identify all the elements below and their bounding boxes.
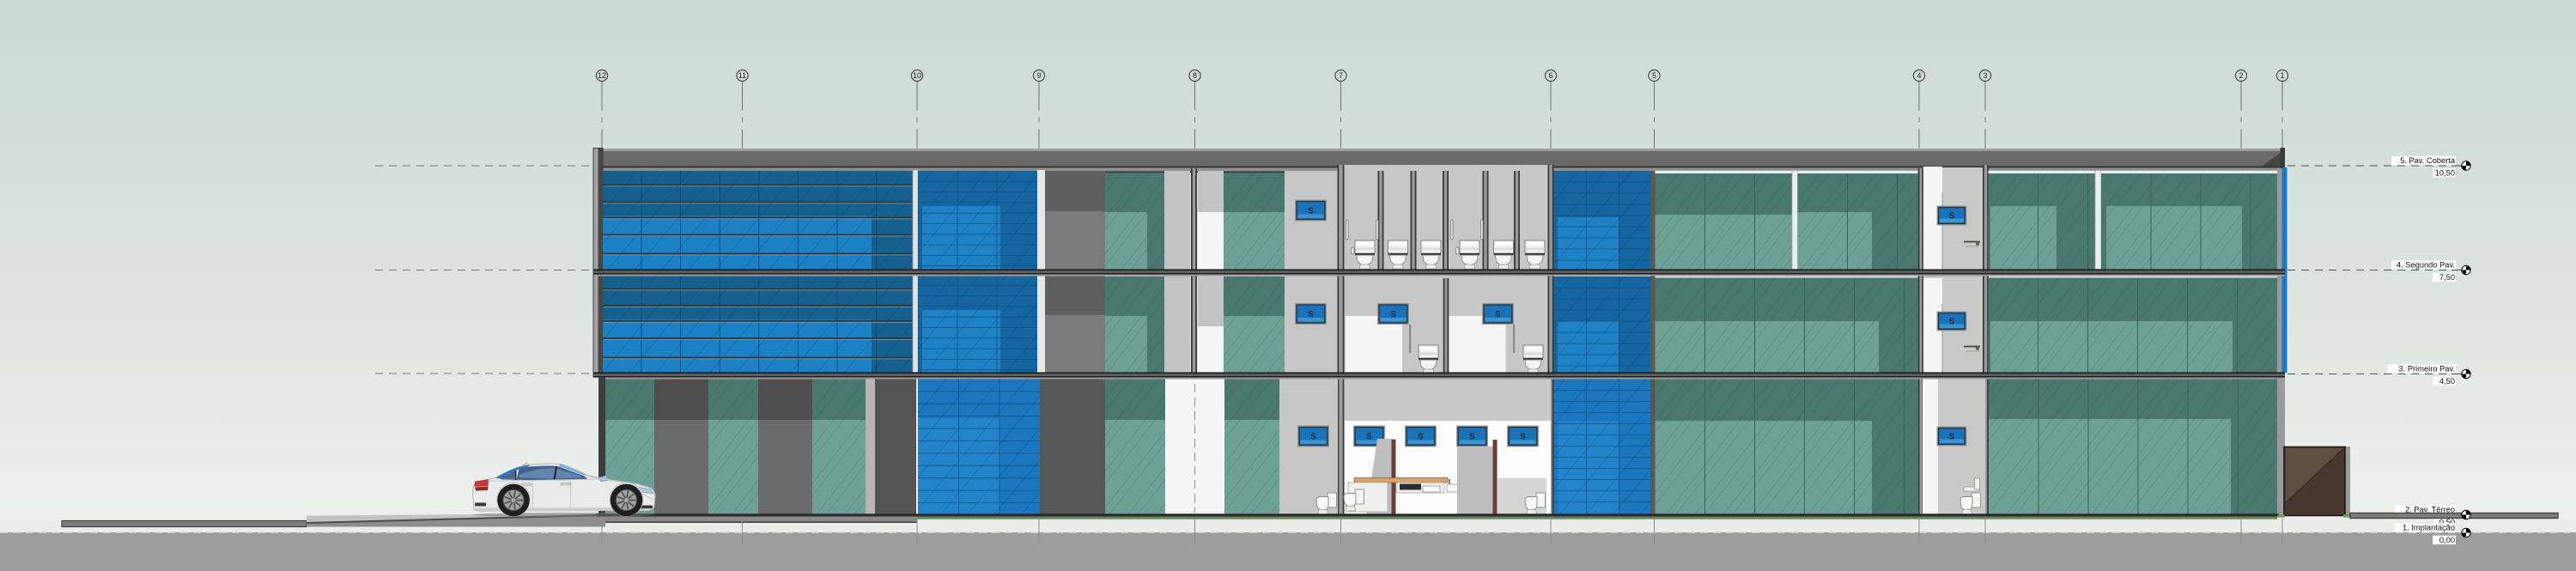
svg-text:12: 12: [598, 71, 606, 80]
svg-text:S: S: [1390, 310, 1396, 319]
svg-text:0,00: 0,00: [2439, 536, 2455, 544]
svg-text:5. Pav. Coberta: 5. Pav. Coberta: [2400, 156, 2456, 165]
svg-text:S: S: [1308, 207, 1314, 216]
svg-text:S: S: [1366, 433, 1372, 442]
svg-text:S: S: [1469, 433, 1475, 442]
svg-text:4. Segundo Pav.: 4. Segundo Pav.: [2397, 261, 2455, 270]
svg-text:8: 8: [1193, 71, 1197, 80]
svg-text:10,50: 10,50: [2435, 169, 2455, 178]
svg-text:4: 4: [1917, 71, 1921, 80]
svg-text:3: 3: [1983, 71, 1987, 80]
svg-text:11: 11: [738, 71, 746, 80]
svg-text:S: S: [1418, 433, 1424, 442]
svg-text:S: S: [1520, 433, 1526, 442]
svg-text:3. Primeiro Pav.: 3. Primeiro Pav.: [2399, 365, 2455, 374]
svg-text:7,50: 7,50: [2439, 273, 2455, 282]
svg-text:2: 2: [2239, 71, 2243, 80]
svg-text:S: S: [1495, 310, 1501, 319]
svg-text:9: 9: [1036, 71, 1041, 80]
svg-text:S: S: [1949, 212, 1955, 222]
svg-text:7: 7: [1339, 71, 1343, 80]
svg-text:S: S: [1310, 433, 1316, 442]
svg-text:6: 6: [1548, 71, 1552, 80]
svg-text:1: 1: [2280, 71, 2284, 80]
svg-text:S: S: [1308, 310, 1314, 319]
svg-text:4,50: 4,50: [2439, 377, 2455, 386]
svg-text:1. Implantação: 1. Implantação: [2403, 524, 2455, 532]
svg-text:5: 5: [1652, 71, 1656, 80]
svg-text:10: 10: [913, 71, 921, 80]
svg-text:S: S: [1949, 318, 1955, 327]
svg-text:S: S: [1949, 433, 1955, 442]
